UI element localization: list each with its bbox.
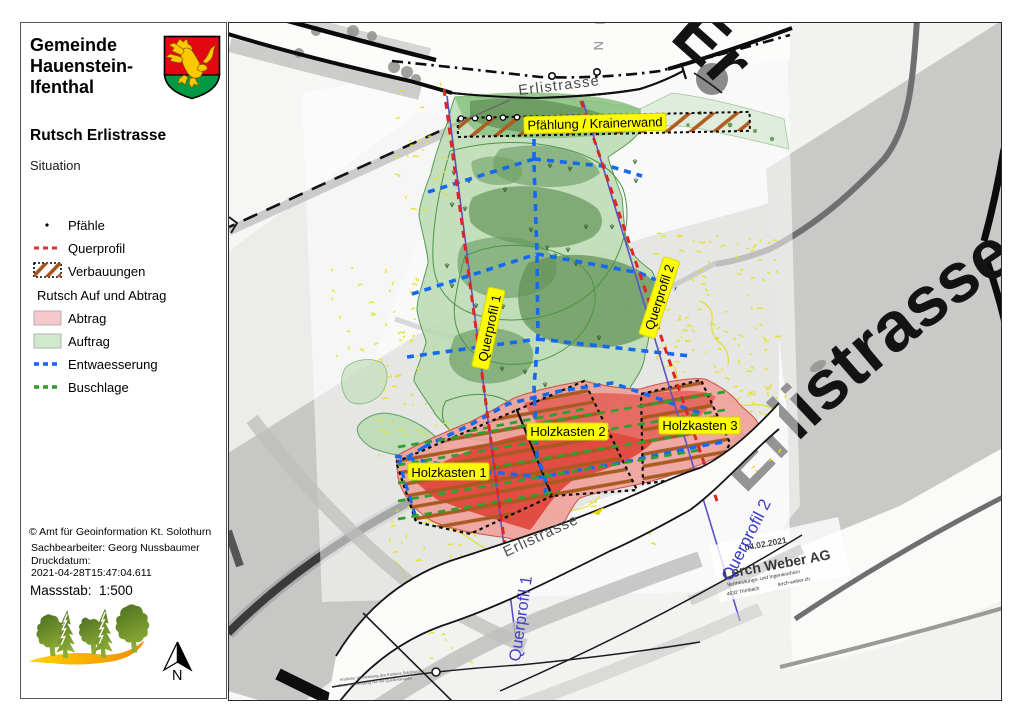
svg-text:Holzkasten 1: Holzkasten 1 [411, 465, 486, 480]
svg-text:Holzkasten 3: Holzkasten 3 [662, 418, 737, 433]
svg-text:Holzkasten 2: Holzkasten 2 [530, 424, 605, 439]
svg-text:N: N [172, 668, 182, 684]
svg-text:N: N [591, 41, 606, 50]
